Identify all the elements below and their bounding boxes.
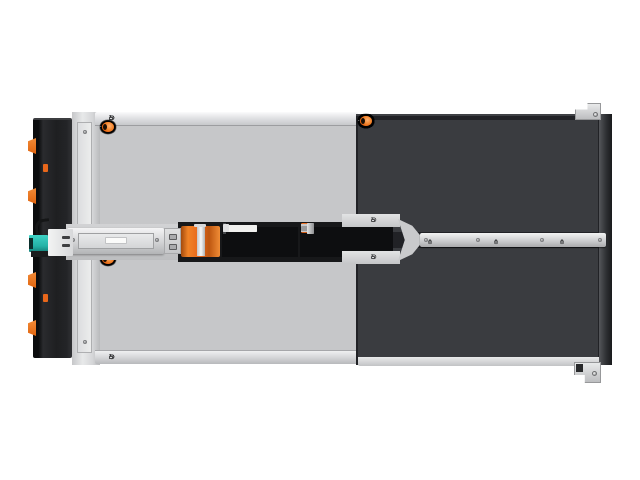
right-bottom-strip <box>358 357 599 366</box>
drive-bay <box>100 126 104 128</box>
rack-mount-bracket-bottom-right <box>574 362 601 383</box>
screw-icon <box>476 238 480 242</box>
rack-mount-bracket-top-right <box>575 103 601 120</box>
screw-icon <box>598 238 602 242</box>
fan-icon <box>169 234 177 240</box>
drive-grid-left-top <box>100 126 356 227</box>
drive-latch-right-icon <box>102 122 114 132</box>
mid-rail-label <box>105 237 127 244</box>
orange-indicator-chip <box>43 164 48 172</box>
connector-slot <box>62 236 70 239</box>
orange-release-tab <box>28 272 36 288</box>
screw-icon <box>83 130 87 134</box>
sled-end-square <box>223 224 229 232</box>
connector-housing <box>48 229 73 256</box>
screw-icon <box>593 112 598 117</box>
screw-icon <box>424 238 428 242</box>
drive-bay <box>358 120 362 122</box>
fan-icon <box>169 244 177 250</box>
teal-sas-connector <box>29 235 48 252</box>
sled-handle <box>307 223 314 234</box>
orange-release-tab <box>28 320 36 336</box>
orange-latch-module <box>181 226 220 257</box>
wedge-plate-top: i⊙ <box>342 214 400 227</box>
drive-grid-right-bottom <box>358 248 598 358</box>
screw-icon <box>540 238 544 242</box>
bottom-chassis-rail: i⊙i⊙i⊙i⊙ <box>95 350 358 364</box>
orange-release-tab <box>28 188 36 204</box>
wedge-plate-bottom: i⊙ <box>342 251 400 264</box>
marking-row: i⊙i⊙i⊙i⊙ <box>109 351 312 364</box>
orange-release-tab <box>28 138 36 154</box>
connector-base <box>31 251 48 257</box>
right-mid-rail: i⊙i⊙i⊙i⊙i⊙i⊙ <box>420 233 606 247</box>
product-photo-storage-enclosure: i⊙i⊙i⊙i⊙ i⊙i⊙i⊙i⊙ <box>0 0 640 480</box>
drive-grid-left-bottom <box>100 258 356 350</box>
drive-latch-right-icon <box>360 116 372 126</box>
orange-indicator-chip <box>43 294 48 302</box>
top-chassis-rail: i⊙i⊙i⊙i⊙ <box>95 112 358 126</box>
latch-stripe <box>197 227 205 256</box>
mid-rail-module <box>67 228 164 254</box>
connector-slot <box>62 244 70 247</box>
screw-icon <box>83 340 87 344</box>
icon-plate <box>164 228 181 254</box>
screw-icon <box>592 371 597 376</box>
controller-sled-pair-left <box>222 227 298 257</box>
screw-icon <box>155 238 159 242</box>
marking-row: i⊙i⊙i⊙i⊙ <box>109 112 312 125</box>
bracket-notch <box>576 364 583 372</box>
